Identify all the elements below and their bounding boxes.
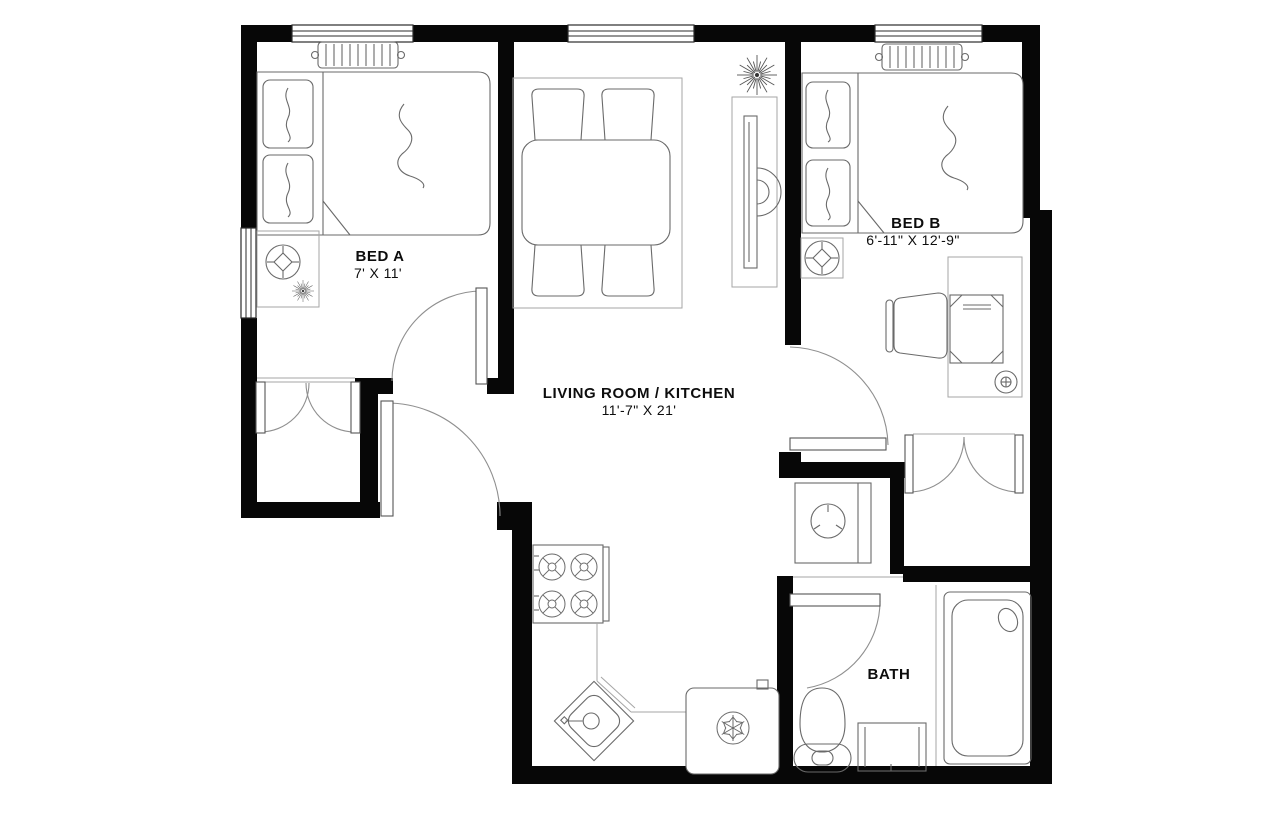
bed-b-dims: 6'-11" X 12'-9": [866, 232, 959, 248]
refrigerator: [686, 680, 779, 774]
bed-b-top-window: [875, 25, 982, 42]
vanity-cabinet: [858, 723, 926, 771]
floor-plan-page: BED A 7' X 11': [0, 0, 1280, 828]
radiator: [876, 44, 969, 70]
plant: [737, 55, 777, 95]
radiator: [312, 42, 405, 68]
fan-side-table: [257, 231, 319, 307]
range-stove: [533, 545, 609, 623]
bed-a-room: BED A 7' X 11': [257, 42, 490, 307]
living-top-window: [568, 25, 694, 42]
living-kitchen: LIVING ROOM / KITCHEN 11'-7" X 21': [513, 55, 781, 774]
bathroom: BATH: [790, 577, 1031, 772]
bed-b-label: BED B: [891, 215, 941, 232]
bed-b-room: BED B 6'-11" X 12'-9": [801, 44, 1023, 397]
corner-sink: [554, 681, 633, 760]
bath-label: BATH: [868, 666, 911, 683]
desk: [948, 257, 1022, 397]
double-bed: [257, 72, 490, 235]
kitchen-counter: [597, 623, 686, 712]
bed-a-door: [392, 288, 487, 384]
bath-door: [790, 594, 880, 688]
floor-plan-drawing: BED A 7' X 11': [0, 0, 1280, 828]
bed-a-closet-doors: [256, 378, 360, 433]
entry-door: [381, 401, 500, 516]
laptop: [950, 295, 1003, 363]
living-dims: 11'-7" X 21': [602, 402, 677, 418]
plant: [292, 280, 314, 302]
dining-table: [522, 140, 670, 245]
bed-a-dims: 7' X 11': [354, 265, 402, 281]
toilet: [794, 688, 851, 772]
bed-a-left-window: [241, 228, 256, 318]
double-bed: [802, 73, 1023, 233]
mug: [995, 371, 1017, 393]
washing-machine: [795, 483, 871, 563]
bed-b-closet-doors: [905, 434, 1023, 493]
fan-side-table: [801, 238, 843, 278]
bed-a-top-window: [292, 25, 413, 42]
bed-b-door: [790, 347, 888, 450]
office-chair: [886, 293, 947, 358]
bathtub: [936, 585, 1031, 766]
bed-a-label: BED A: [355, 248, 404, 265]
washer-closet: [795, 483, 871, 563]
wall-tv: [732, 97, 781, 287]
living-label: LIVING ROOM / KITCHEN: [543, 385, 736, 402]
